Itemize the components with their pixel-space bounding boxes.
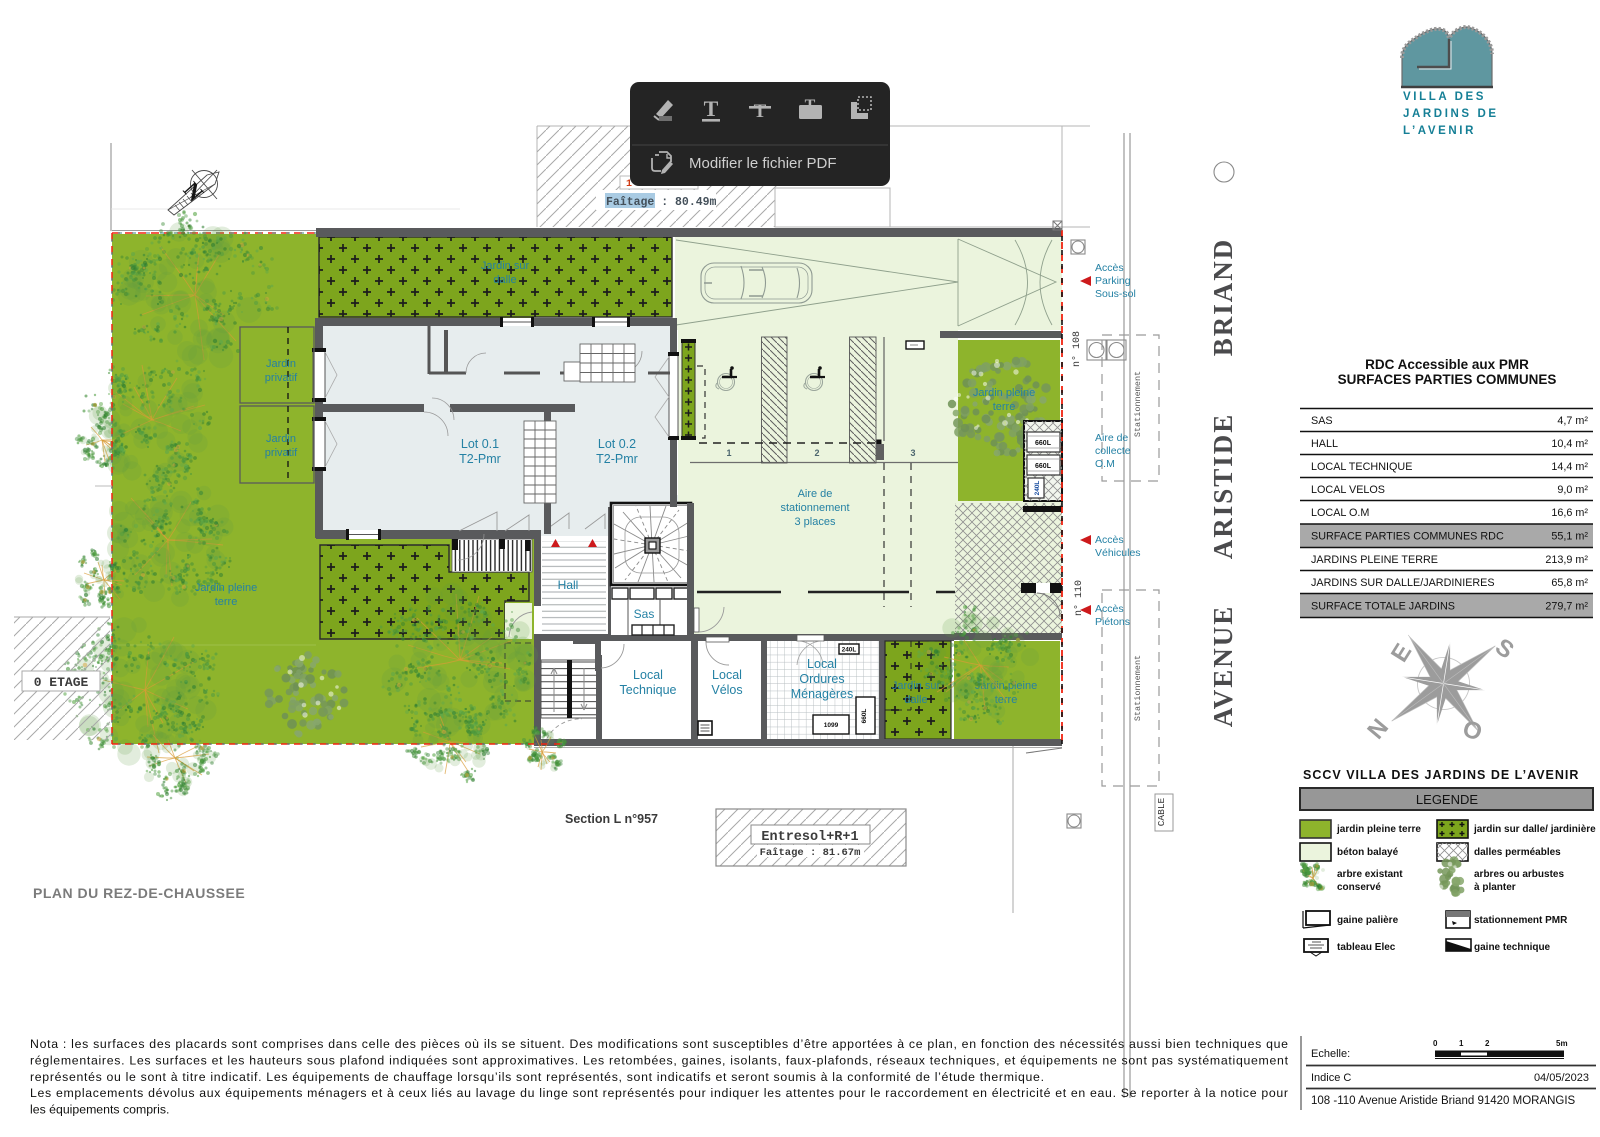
svg-text:240L: 240L: [1034, 481, 1041, 496]
svg-text:Aire de: Aire de: [1095, 432, 1128, 444]
svg-text:14,4 m²: 14,4 m²: [1551, 461, 1588, 473]
svg-text:16,6 m²: 16,6 m²: [1551, 507, 1588, 519]
svg-text:Lot 0.1: Lot 0.1: [461, 437, 499, 451]
svg-text:privatif: privatif: [265, 372, 298, 384]
svg-text:SAS: SAS: [1311, 415, 1333, 427]
svg-text:Jardin pleine: Jardin pleine: [195, 582, 257, 594]
svg-text:T: T: [754, 101, 767, 122]
svg-text:1099: 1099: [824, 722, 839, 729]
svg-text:Jardin pleine: Jardin pleine: [973, 387, 1035, 399]
svg-text:dalles perméables: dalles perméables: [1474, 847, 1561, 858]
svg-text:CABLE: CABLE: [1156, 797, 1167, 826]
svg-text:Vélos: Vélos: [711, 683, 742, 697]
svg-text:660L: 660L: [1035, 463, 1052, 470]
svg-text:à planter: à planter: [1474, 882, 1516, 893]
svg-text:T: T: [704, 96, 719, 121]
svg-text:réglementaires. Les surfaces e: réglementaires. Les surfaces et les haut…: [30, 1053, 1289, 1067]
svg-text:arbres ou arbustes: arbres ou arbustes: [1474, 869, 1564, 880]
svg-text:BRIAND: BRIAND: [1208, 238, 1238, 357]
svg-text:Accès: Accès: [1095, 603, 1124, 615]
svg-text:660L: 660L: [861, 709, 868, 724]
svg-text:collecte: collecte: [1095, 445, 1131, 457]
svg-text:VILLA DES: VILLA DES: [1403, 91, 1486, 103]
svg-text:privatif: privatif: [265, 447, 298, 459]
svg-text:LOCAL TECHNIQUE: LOCAL TECHNIQUE: [1311, 461, 1412, 473]
svg-text:terre: terre: [993, 401, 1016, 413]
svg-text:Piétons: Piétons: [1095, 616, 1130, 628]
svg-text:stationnement: stationnement: [780, 502, 849, 514]
svg-text:conservé: conservé: [1337, 882, 1381, 893]
svg-text:Modifier le fichier PDF: Modifier le fichier PDF: [689, 155, 837, 172]
svg-text:Ordures: Ordures: [799, 672, 844, 686]
svg-text:65,8 m²: 65,8 m²: [1551, 577, 1588, 589]
svg-text:04/05/2023: 04/05/2023: [1534, 1072, 1589, 1084]
svg-text:SURFACE TOTALE JARDINS: SURFACE TOTALE JARDINS: [1311, 600, 1455, 612]
svg-text:1: 1: [1459, 1039, 1464, 1048]
svg-text:tableau Elec: tableau Elec: [1337, 942, 1396, 953]
svg-text:SURFACE PARTIES COMMUNES RDC: SURFACE PARTIES COMMUNES RDC: [1311, 531, 1504, 543]
svg-text:Echelle:: Echelle:: [1311, 1048, 1350, 1060]
svg-text:arbre existant: arbre existant: [1337, 869, 1403, 880]
svg-text:les équipements compris.: les équipements compris.: [30, 1103, 169, 1117]
svg-text:0 ETAGE: 0 ETAGE: [34, 675, 89, 690]
svg-text:0: 0: [1433, 1039, 1438, 1048]
svg-text:108 -110 Avenue Aristide Brian: 108 -110 Avenue Aristide Briand 91420 MO…: [1311, 1095, 1576, 1107]
svg-text:1: 1: [726, 448, 731, 458]
svg-text:Accès: Accès: [1095, 262, 1124, 274]
svg-text:3 places: 3 places: [795, 516, 836, 528]
svg-text:terre: terre: [215, 596, 238, 608]
svg-text:Hall: Hall: [558, 578, 579, 592]
svg-text:Stationnement: Stationnement: [1133, 655, 1143, 721]
svg-text:Section L n°957: Section L n°957: [565, 812, 658, 826]
svg-text:O.M: O.M: [1095, 458, 1115, 470]
svg-text:9,0 m²: 9,0 m²: [1557, 484, 1588, 496]
svg-text:Technique: Technique: [620, 683, 677, 697]
svg-text:HALL: HALL: [1311, 438, 1338, 450]
svg-text:Stationnement: Stationnement: [1133, 371, 1143, 437]
svg-text:JARDINS PLEINE TERRE: JARDINS PLEINE TERRE: [1311, 554, 1438, 566]
svg-text:béton balayé: béton balayé: [1337, 847, 1399, 858]
svg-text:Entresol+R+1: Entresol+R+1: [761, 830, 858, 845]
svg-text:stationnement PMR: stationnement PMR: [1474, 915, 1568, 926]
svg-text:Faîtage : 80.49m: Faîtage : 80.49m: [606, 196, 717, 209]
svg-text:Sas: Sas: [634, 607, 655, 621]
svg-text:Lot 0.2: Lot 0.2: [598, 437, 636, 451]
svg-text:gaine palière: gaine palière: [1337, 915, 1399, 926]
svg-text:Parking: Parking: [1095, 275, 1131, 287]
svg-text:LOCAL O.M: LOCAL O.M: [1311, 507, 1369, 519]
svg-text:240L: 240L: [842, 647, 857, 654]
svg-text:Jardin sur: Jardin sur: [481, 260, 530, 272]
svg-text:Jardin: Jardin: [266, 433, 296, 445]
svg-text:AVENUE: AVENUE: [1208, 605, 1238, 728]
svg-text:n° 108: n° 108: [1071, 331, 1083, 367]
svg-text:Local: Local: [633, 668, 663, 682]
svg-text:jardin sur dalle/ jardinière: jardin sur dalle/ jardinière: [1473, 824, 1596, 835]
svg-text:55,1 m²: 55,1 m²: [1551, 531, 1588, 543]
svg-text:2: 2: [814, 448, 819, 458]
svg-text:213,9 m²: 213,9 m²: [1545, 554, 1588, 566]
svg-text:5m: 5m: [1556, 1039, 1568, 1048]
svg-text:10,4 m²: 10,4 m²: [1551, 438, 1588, 450]
svg-text:Ménagères: Ménagères: [791, 687, 854, 701]
svg-text:660L: 660L: [1035, 440, 1052, 447]
svg-text:SURFACES PARTIES COMMUNES: SURFACES PARTIES COMMUNES: [1338, 372, 1557, 387]
svg-text:RDC Accessible aux PMR: RDC Accessible aux PMR: [1365, 357, 1529, 372]
svg-text:T2-Pmr: T2-Pmr: [459, 452, 501, 466]
svg-text:3: 3: [910, 448, 915, 458]
svg-text:Jardin: Jardin: [266, 358, 296, 370]
svg-text:Local: Local: [807, 657, 837, 671]
svg-text:Local: Local: [712, 668, 742, 682]
svg-text:dalle: dalle: [493, 274, 516, 286]
svg-text:Indice C: Indice C: [1311, 1072, 1351, 1084]
svg-text:JARDINS SUR DALLE/JARDINIERES: JARDINS SUR DALLE/JARDINIERES: [1311, 577, 1495, 589]
svg-text:Sous-sol: Sous-sol: [1095, 288, 1136, 300]
svg-text:SCCV VILLA DES JARDINS DE L’AV: SCCV VILLA DES JARDINS DE L’AVENIR: [1303, 768, 1579, 782]
svg-text:jardin pleine terre: jardin pleine terre: [1336, 824, 1421, 835]
svg-text:dalle: dalle: [904, 694, 927, 706]
svg-text:279,7 m²: 279,7 m²: [1545, 600, 1588, 612]
svg-text:Aire de: Aire de: [798, 488, 833, 500]
svg-text:Accès: Accès: [1095, 534, 1124, 546]
svg-text:LOCAL VELOS: LOCAL VELOS: [1311, 484, 1385, 496]
svg-text:2: 2: [1485, 1039, 1490, 1048]
svg-text:JARDINS DE: JARDINS DE: [1403, 108, 1499, 120]
svg-text:représentés ou le sont à titre: représentés ou le sont à titre indicatif…: [30, 1070, 1044, 1084]
svg-text:PLAN DU REZ-DE-CHAUSSEE: PLAN DU REZ-DE-CHAUSSEE: [33, 885, 245, 901]
svg-text:4,7 m²: 4,7 m²: [1557, 415, 1588, 427]
svg-text:ARISTIDE: ARISTIDE: [1208, 413, 1238, 560]
svg-text:L’AVENIR: L’AVENIR: [1403, 125, 1476, 137]
svg-text:T2-Pmr: T2-Pmr: [596, 452, 638, 466]
svg-text:LEGENDE: LEGENDE: [1416, 792, 1478, 807]
svg-text:Nota : les surfaces des placar: Nota : les surfaces des placards sont co…: [30, 1037, 1288, 1051]
svg-text:Véhicules: Véhicules: [1095, 547, 1141, 559]
svg-text:gaine technique: gaine technique: [1474, 942, 1551, 953]
svg-text:Faîtage : 81.67m: Faîtage : 81.67m: [760, 847, 861, 859]
svg-text:Les emplacements dévolus aux é: Les emplacements dévolus aux équipements…: [30, 1086, 1288, 1100]
